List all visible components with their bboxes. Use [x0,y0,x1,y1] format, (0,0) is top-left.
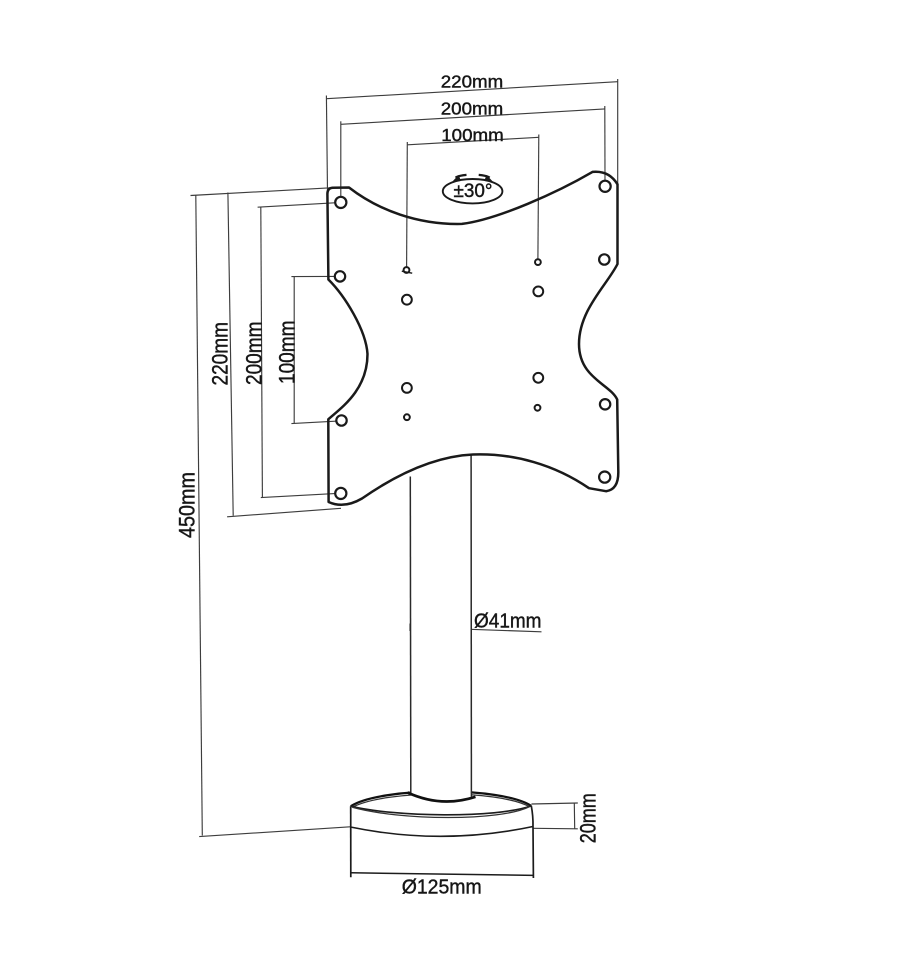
svg-text:220mm: 220mm [441,72,504,92]
svg-text:450mm: 450mm [175,472,200,538]
svg-text:200mm: 200mm [241,322,266,386]
svg-text:±30°: ±30° [454,181,493,202]
svg-text:20mm: 20mm [575,793,600,843]
svg-text:Ø125mm: Ø125mm [402,875,482,898]
svg-text:100mm: 100mm [275,321,300,385]
svg-text:200mm: 200mm [441,99,504,119]
svg-text:220mm: 220mm [208,322,233,386]
svg-text:Ø41mm: Ø41mm [474,609,542,632]
svg-text:100mm: 100mm [441,125,504,145]
